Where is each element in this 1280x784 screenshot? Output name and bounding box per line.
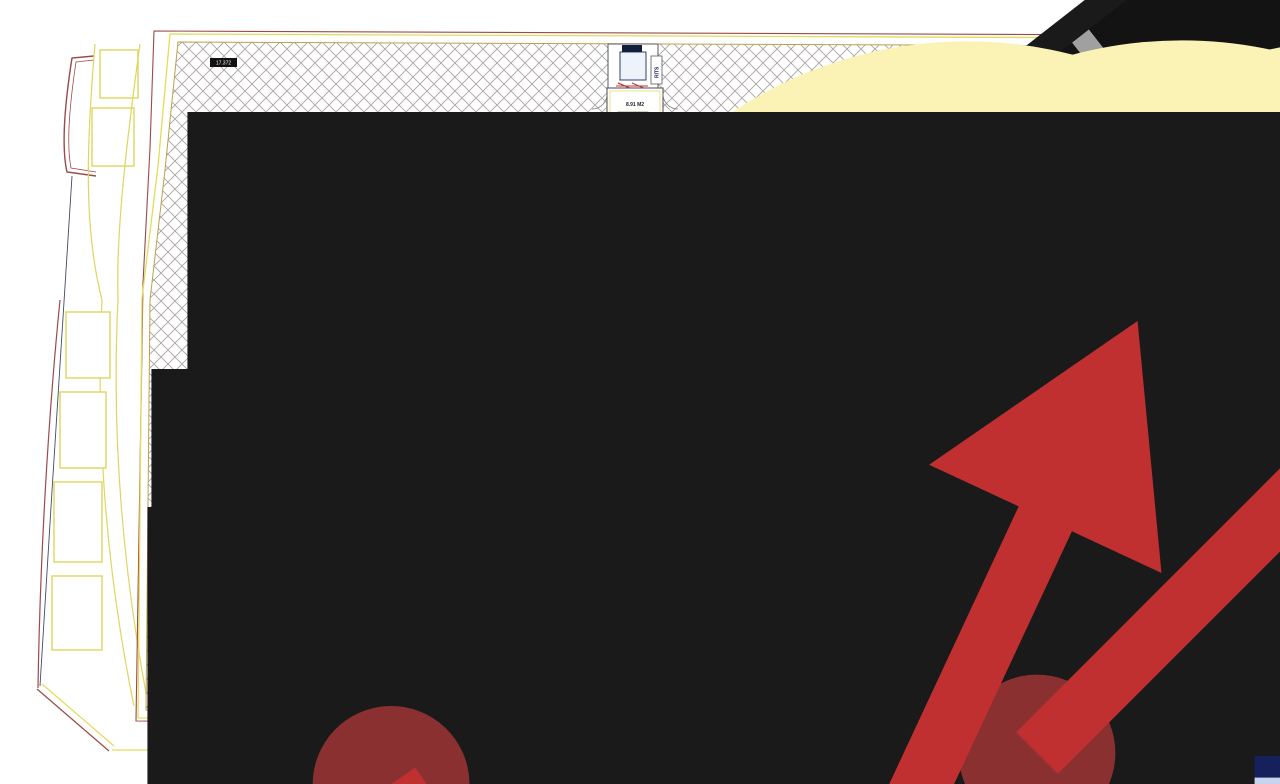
rits-1-label: RITS (655, 66, 661, 78)
escalera1-area-label: 8.91 M2 (626, 102, 644, 108)
dim-top-left-label: 17.372 (216, 61, 232, 67)
elevator-1 (620, 52, 646, 80)
floor-plan-svg: PISCINA 70.15 M2 DEPURADORA 7.03 M2 ASEO… (0, 0, 1280, 784)
left-exterior-balconies (38, 44, 148, 706)
floor-plan-canvas: PISCINA 70.15 M2 DEPURADORA 7.03 M2 ASEO… (0, 0, 1280, 784)
